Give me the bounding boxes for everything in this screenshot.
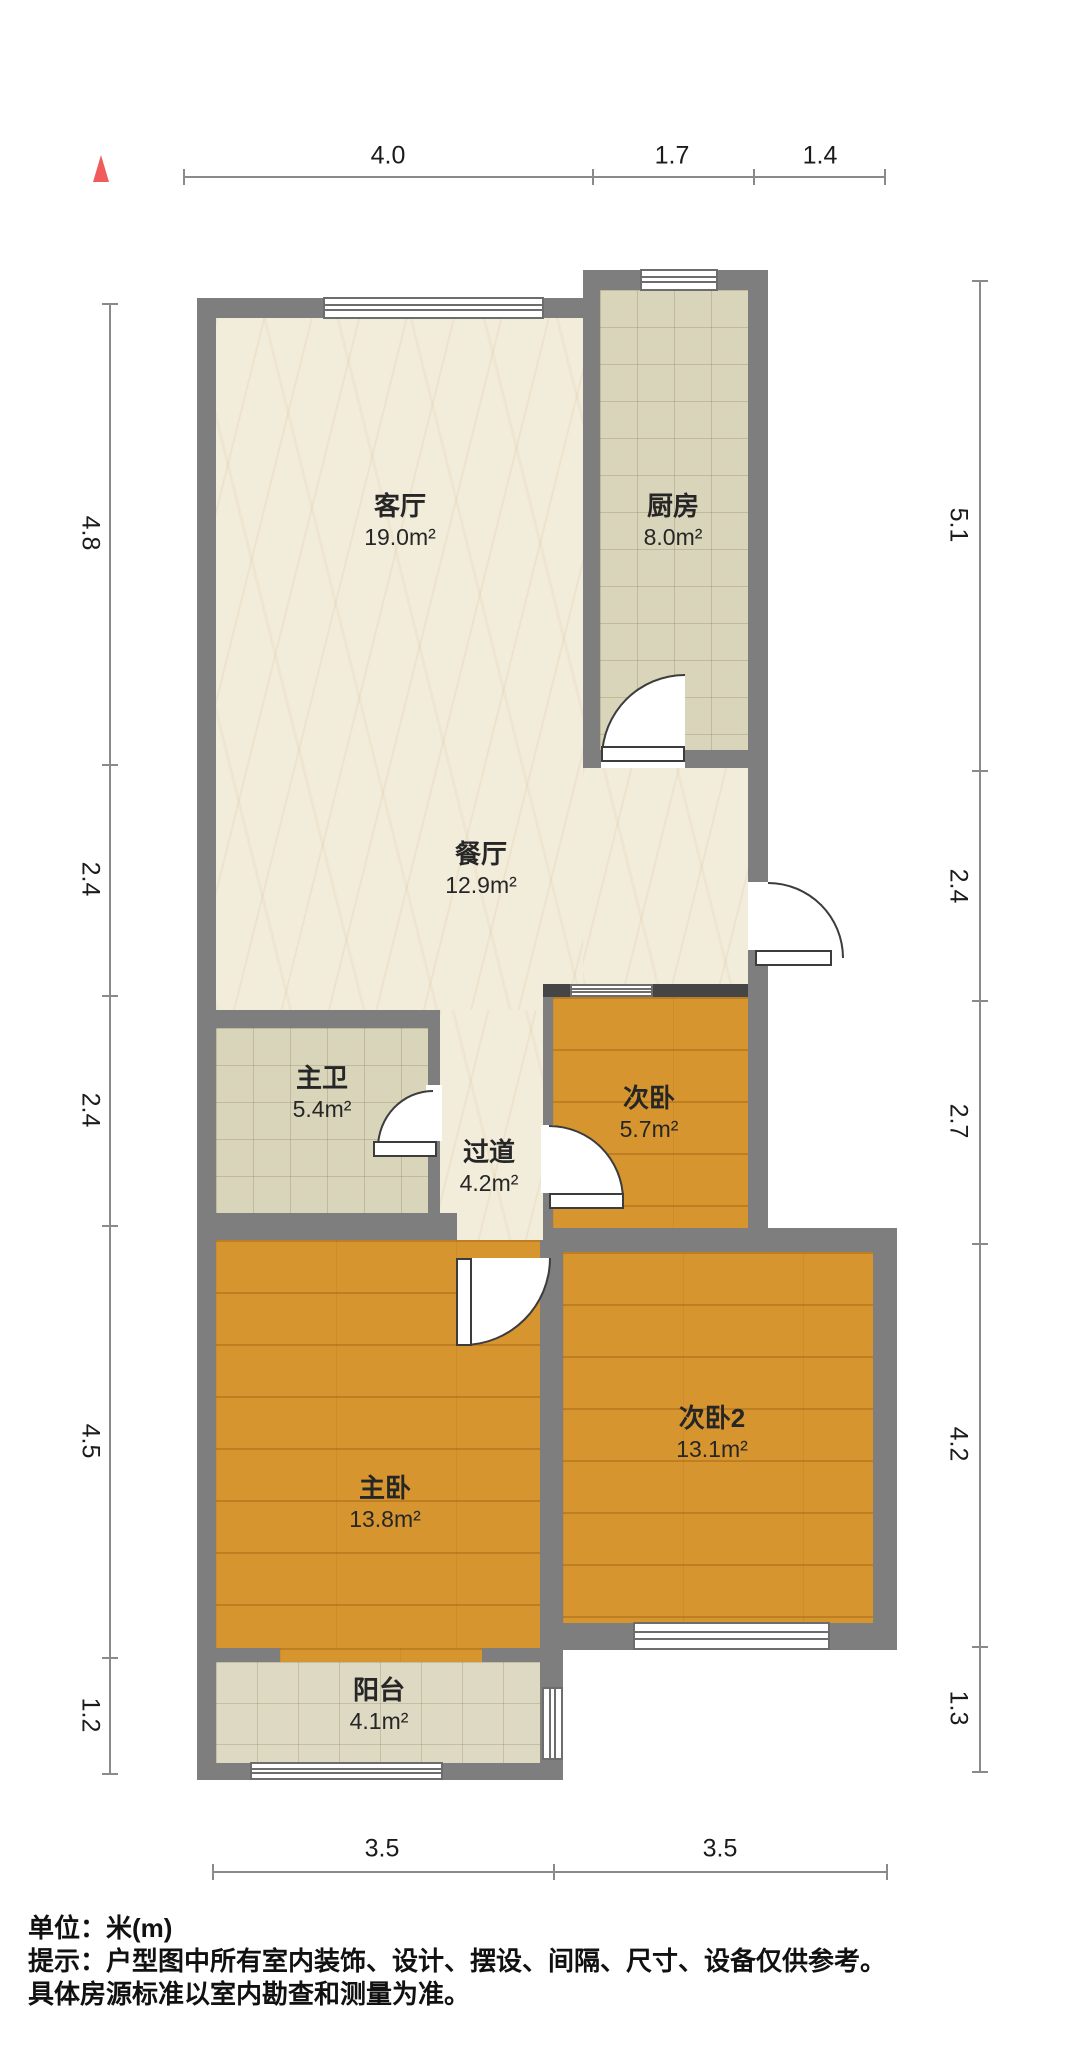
dimension-label: 2.4 — [76, 862, 105, 897]
window — [250, 1762, 443, 1780]
window — [633, 1622, 830, 1650]
entry-door-arc — [768, 882, 844, 958]
room-area: 12.9m² — [445, 870, 517, 900]
room-name: 过道 — [460, 1136, 519, 1168]
room-name: 次卧 — [620, 1082, 679, 1114]
door-opening — [748, 882, 768, 950]
dimension-label: 2.7 — [944, 1104, 973, 1139]
room-label-balcony: 阳台 4.1m² — [350, 1674, 409, 1736]
wall — [583, 290, 600, 768]
balcony-threshold — [280, 1648, 482, 1662]
room-name: 主卧 — [349, 1472, 421, 1504]
dimension-label: 1.4 — [803, 142, 838, 171]
room-area: 4.2m² — [460, 1168, 519, 1198]
wall — [197, 1648, 280, 1662]
dimension-line-right — [979, 280, 981, 1771]
kitchen-door-leaf — [601, 746, 685, 762]
dimension-tick — [972, 280, 988, 282]
master-door-leaf — [456, 1258, 472, 1346]
room-label-living: 客厅 19.0m² — [364, 490, 436, 552]
room-label-kitchen: 厨房 8.0m² — [644, 490, 703, 552]
room-name: 厨房 — [644, 490, 703, 522]
window — [570, 984, 653, 997]
dimension-tick — [102, 1657, 118, 1659]
dimension-label: 3.5 — [703, 1835, 738, 1864]
dimension-label: 3.5 — [365, 1835, 400, 1864]
north-compass-icon — [93, 155, 109, 182]
dimension-tick — [972, 1771, 988, 1773]
bathroom-door-leaf — [373, 1141, 437, 1157]
room-area: 8.0m² — [644, 522, 703, 552]
dimension-tick — [884, 169, 886, 185]
dimension-tick — [212, 1864, 214, 1880]
room-label-bathroom: 主卫 5.4m² — [293, 1062, 352, 1124]
window — [323, 297, 544, 319]
floor-plan: 客厅 19.0m² 厨房 8.0m² 餐厅 12.9m² 主卫 5.4m² 过道… — [0, 0, 1091, 2048]
room-area: 5.7m² — [620, 1114, 679, 1144]
dimension-label: 2.4 — [944, 869, 973, 904]
dimension-tick — [102, 764, 118, 766]
dimension-tick — [972, 1243, 988, 1245]
dimension-label: 4.0 — [371, 142, 406, 171]
dimension-line-bottom — [212, 1871, 888, 1873]
dimension-label: 5.1 — [944, 508, 973, 543]
dimension-line-top — [183, 176, 886, 178]
bedroom2-door-leaf — [549, 1193, 624, 1209]
room-label-master: 主卧 13.8m² — [349, 1472, 421, 1534]
dimension-label: 4.5 — [76, 1424, 105, 1459]
unit-note: 单位：米(m) — [28, 1912, 172, 1945]
room-name: 客厅 — [364, 490, 436, 522]
disclaimer-line1: 提示：户型图中所有室内装饰、设计、摆设、间隔、尺寸、设备仅供参考。 — [28, 1945, 886, 1978]
room-label-dining: 餐厅 12.9m² — [445, 838, 517, 900]
room-name: 阳台 — [350, 1674, 409, 1706]
dimension-tick — [592, 169, 594, 185]
dimension-label: 2.4 — [76, 1093, 105, 1128]
room-name: 次卧2 — [676, 1402, 748, 1434]
room-name: 主卫 — [293, 1062, 352, 1094]
dimension-tick — [753, 169, 755, 185]
wall — [748, 768, 768, 1228]
dimension-tick — [183, 169, 185, 185]
room-area: 4.1m² — [350, 1706, 409, 1736]
dimension-tick — [102, 995, 118, 997]
room-area: 19.0m² — [364, 522, 436, 552]
wall — [748, 270, 768, 768]
dimension-label: 4.2 — [944, 1427, 973, 1462]
dimension-tick — [102, 303, 118, 305]
dimension-label: 4.8 — [76, 516, 105, 551]
dimension-tick — [972, 1646, 988, 1648]
wall — [543, 1228, 897, 1252]
dimension-tick — [553, 1864, 555, 1880]
room-label-bedroom3: 次卧2 13.1m² — [676, 1402, 748, 1464]
dimension-label: 1.3 — [944, 1691, 973, 1726]
dining-floor-right — [583, 768, 748, 984]
dimension-label: 1.2 — [76, 1698, 105, 1733]
disclaimer-line2: 具体房源标准以室内勘查和测量为准。 — [28, 1978, 470, 2011]
room-label-bedroom2: 次卧 5.7m² — [620, 1082, 679, 1144]
window — [542, 1687, 563, 1760]
wall — [197, 298, 216, 1780]
wall — [197, 1213, 457, 1240]
wall — [197, 1010, 440, 1028]
dimension-tick — [972, 1000, 988, 1002]
wall — [873, 1228, 897, 1650]
dimension-tick — [102, 1225, 118, 1227]
dimension-tick — [972, 770, 988, 772]
dimension-line-left — [109, 303, 111, 1773]
room-label-hallway: 过道 4.2m² — [460, 1136, 519, 1198]
dimension-tick — [102, 1773, 118, 1775]
dimension-tick — [886, 1864, 888, 1880]
room-area: 13.1m² — [676, 1434, 748, 1464]
entry-door-leaf — [755, 950, 832, 966]
room-area: 13.8m² — [349, 1504, 421, 1534]
dimension-label: 1.7 — [655, 142, 690, 171]
room-name: 餐厅 — [445, 838, 517, 870]
wall — [482, 1648, 563, 1662]
living-dining-floor — [216, 318, 583, 1010]
room-area: 5.4m² — [293, 1094, 352, 1124]
window — [640, 269, 718, 291]
